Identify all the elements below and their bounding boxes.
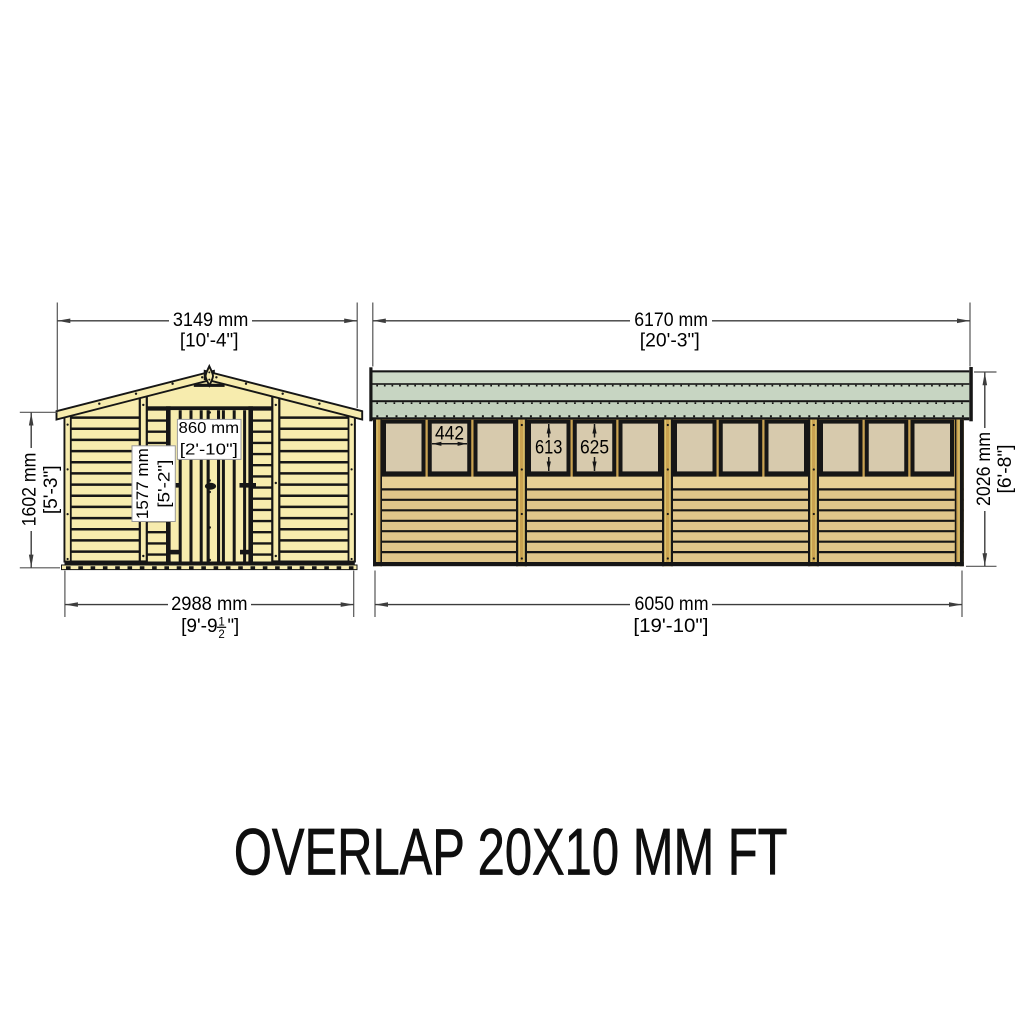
svg-text:442: 442: [435, 423, 464, 445]
svg-text:OVERLAP 20X10 MM FT: OVERLAP 20X10 MM FT: [234, 816, 788, 889]
svg-text:6050 mm: 6050 mm: [635, 593, 709, 615]
svg-text:1577 mm: 1577 mm: [134, 448, 152, 519]
svg-text:6170 mm: 6170 mm: [634, 309, 708, 331]
svg-text:[6'-8"]: [6'-8"]: [994, 445, 1016, 494]
svg-text:[10'-4"]: [10'-4"]: [180, 330, 239, 352]
svg-text:2: 2: [218, 629, 224, 641]
svg-text:613: 613: [535, 437, 562, 459]
svg-text:625: 625: [580, 437, 609, 459]
svg-text:[9'-9: [9'-9: [181, 615, 218, 637]
svg-text:2988 mm: 2988 mm: [171, 593, 247, 615]
svg-text:1602 mm: 1602 mm: [19, 453, 41, 527]
svg-text:[5'-3"]: [5'-3"]: [40, 465, 62, 514]
svg-text:1: 1: [218, 616, 224, 628]
svg-text:[20'-3"]: [20'-3"]: [640, 330, 700, 352]
svg-text:[19'-10"]: [19'-10"]: [633, 615, 708, 637]
svg-text:3149 mm: 3149 mm: [173, 309, 249, 331]
svg-text:[2'-10"]: [2'-10"]: [180, 442, 238, 459]
svg-text:2026 mm: 2026 mm: [973, 432, 995, 506]
svg-text:"]: "]: [228, 615, 240, 637]
svg-text:860 mm: 860 mm: [179, 420, 240, 437]
svg-text:[5'-2"]: [5'-2"]: [156, 460, 174, 508]
